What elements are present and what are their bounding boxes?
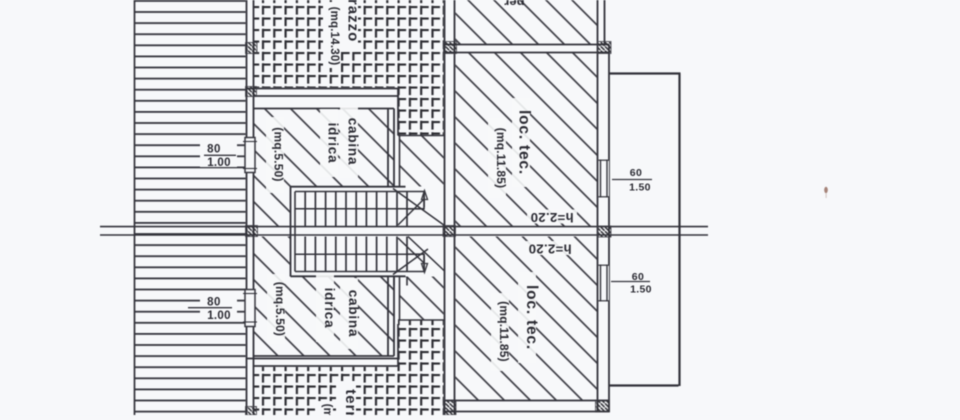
svg-text:h=2.20: h=2.20 [528,241,571,256]
svg-text:(mq.14.30): (mq.14.30) [321,404,333,415]
svg-text:cabina: cabina [346,118,361,166]
svg-text:1.00: 1.00 [207,310,231,322]
svg-text:1.00: 1.00 [207,157,231,169]
svg-text:h=2.20: h=2.20 [530,210,573,225]
svg-text:(mq.5.50): (mq.5.50) [273,282,287,336]
svg-text:60: 60 [630,167,642,179]
svg-text:(mq.14.30): (mq.14.30) [328,7,340,66]
svg-text:terrazzo: terrazzo [345,0,362,42]
svg-text:terrazzo: terrazzo [342,389,359,415]
svg-text:idrica: idrica [326,123,341,164]
svg-text:(mq.11.85): (mq.11.85) [494,128,508,189]
svg-text:80: 80 [207,297,221,309]
svg-text:loc. tec.: loc. tec. [516,110,533,175]
svg-text:per.: per. [501,0,524,10]
svg-text:(mq.11.85): (mq.11.85) [497,301,511,362]
svg-text:loc. tec.: loc. tec. [523,285,540,350]
svg-text:cabina: cabina [346,290,361,338]
svg-text:80: 80 [207,144,221,156]
svg-text:1.50: 1.50 [629,182,651,194]
svg-text:1.50: 1.50 [630,284,652,296]
svg-text:idrica: idrica [322,288,337,329]
svg-text:(mq.5.50): (mq.5.50) [272,127,286,181]
